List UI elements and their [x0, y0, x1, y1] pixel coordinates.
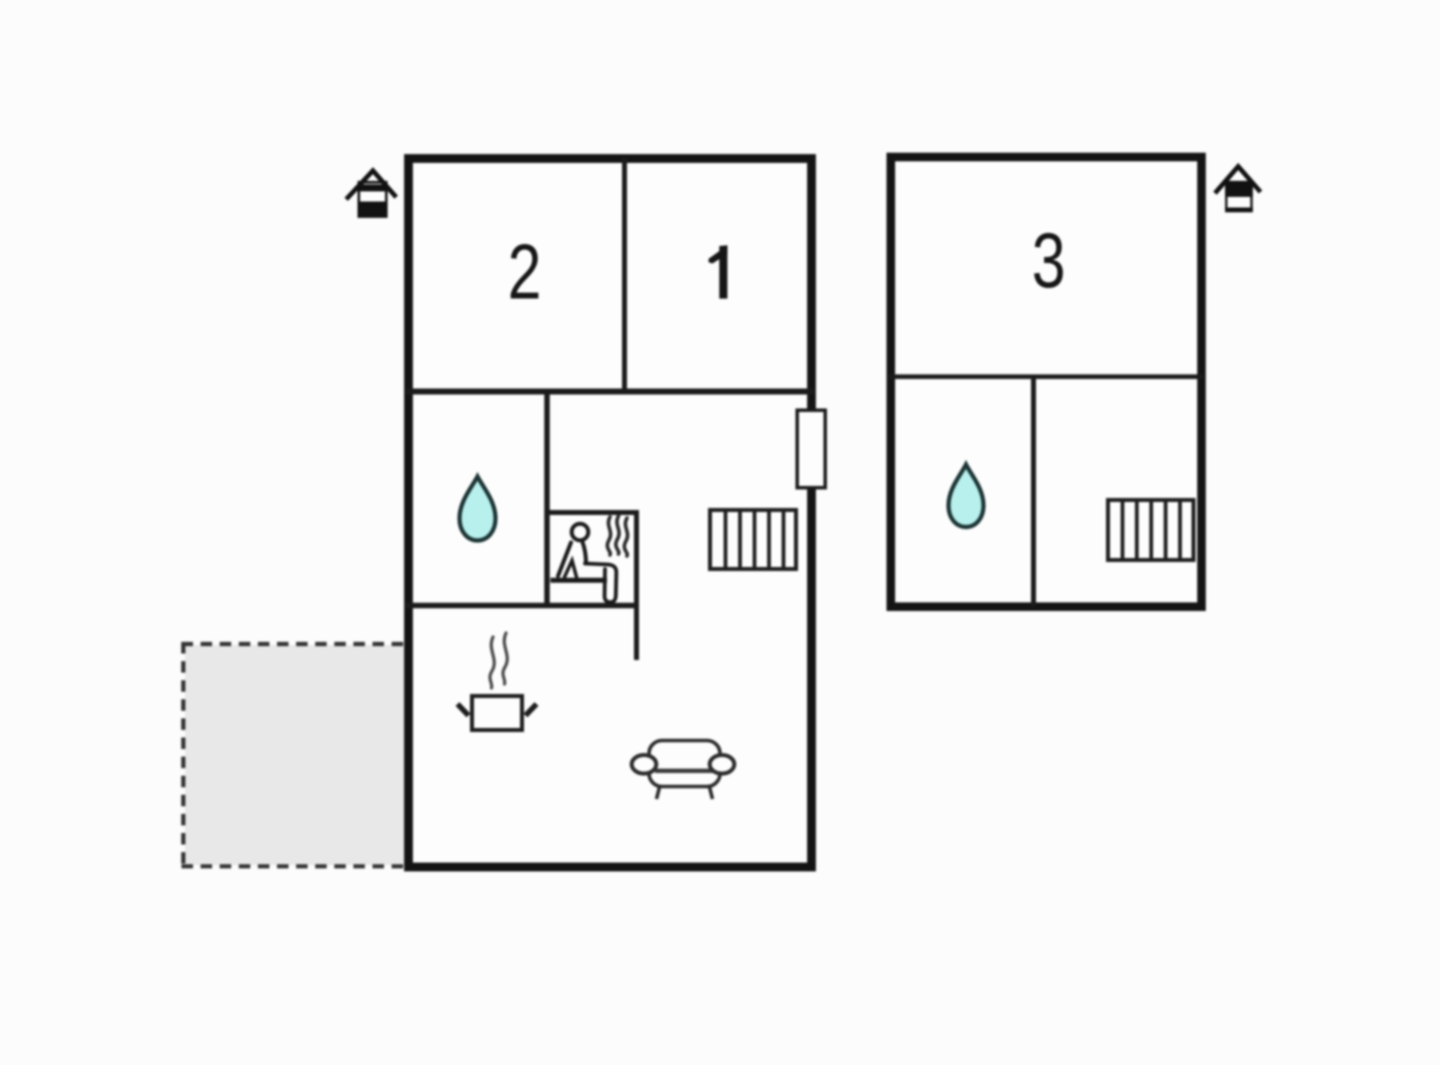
svg-text:2: 2	[508, 228, 542, 315]
svg-text:3: 3	[1032, 217, 1066, 304]
